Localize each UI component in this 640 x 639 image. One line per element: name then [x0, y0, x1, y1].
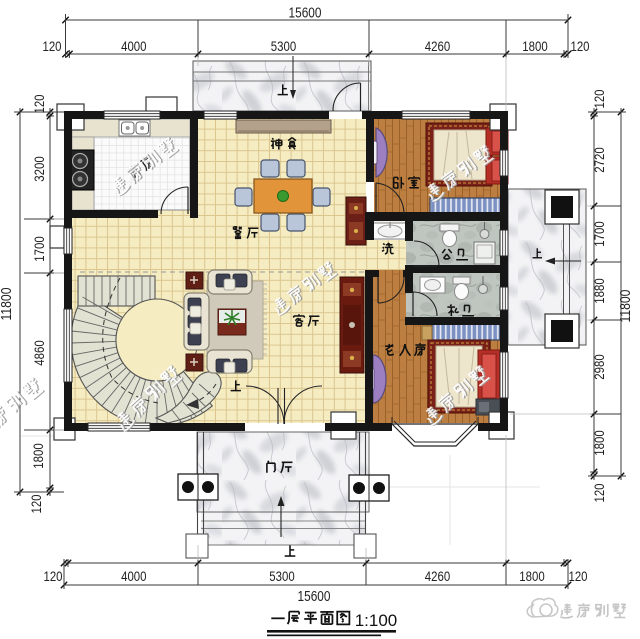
- svg-text:4000: 4000: [121, 38, 147, 54]
- svg-text:120: 120: [31, 94, 47, 113]
- svg-text:120: 120: [44, 568, 63, 584]
- svg-text:1880: 1880: [591, 278, 607, 304]
- svg-text:120: 120: [571, 38, 590, 54]
- svg-text:1800: 1800: [591, 430, 607, 456]
- svg-text:1:100: 1:100: [355, 611, 398, 630]
- svg-text:4260: 4260: [425, 38, 451, 54]
- svg-text:4260: 4260: [425, 568, 451, 584]
- svg-text:1700: 1700: [591, 221, 607, 247]
- svg-text:5300: 5300: [269, 568, 295, 584]
- svg-text:1800: 1800: [30, 443, 46, 469]
- svg-text:15600: 15600: [298, 589, 331, 605]
- svg-text:1800: 1800: [522, 38, 548, 54]
- svg-text:3200: 3200: [31, 156, 47, 182]
- svg-text:120: 120: [591, 483, 607, 502]
- svg-text:11800: 11800: [0, 288, 15, 321]
- svg-text:120: 120: [43, 38, 62, 54]
- svg-text:2980: 2980: [591, 354, 607, 380]
- svg-text:120: 120: [569, 568, 588, 584]
- svg-text:11800: 11800: [618, 290, 634, 323]
- svg-text:2720: 2720: [591, 147, 607, 173]
- svg-text:120: 120: [28, 494, 44, 513]
- svg-text:4000: 4000: [121, 568, 147, 584]
- svg-text:1700: 1700: [31, 236, 47, 262]
- svg-text:5300: 5300: [271, 38, 297, 54]
- svg-text:4860: 4860: [31, 340, 47, 366]
- svg-text:1800: 1800: [519, 568, 545, 584]
- svg-text:120: 120: [591, 89, 607, 108]
- svg-text:15600: 15600: [289, 6, 322, 22]
